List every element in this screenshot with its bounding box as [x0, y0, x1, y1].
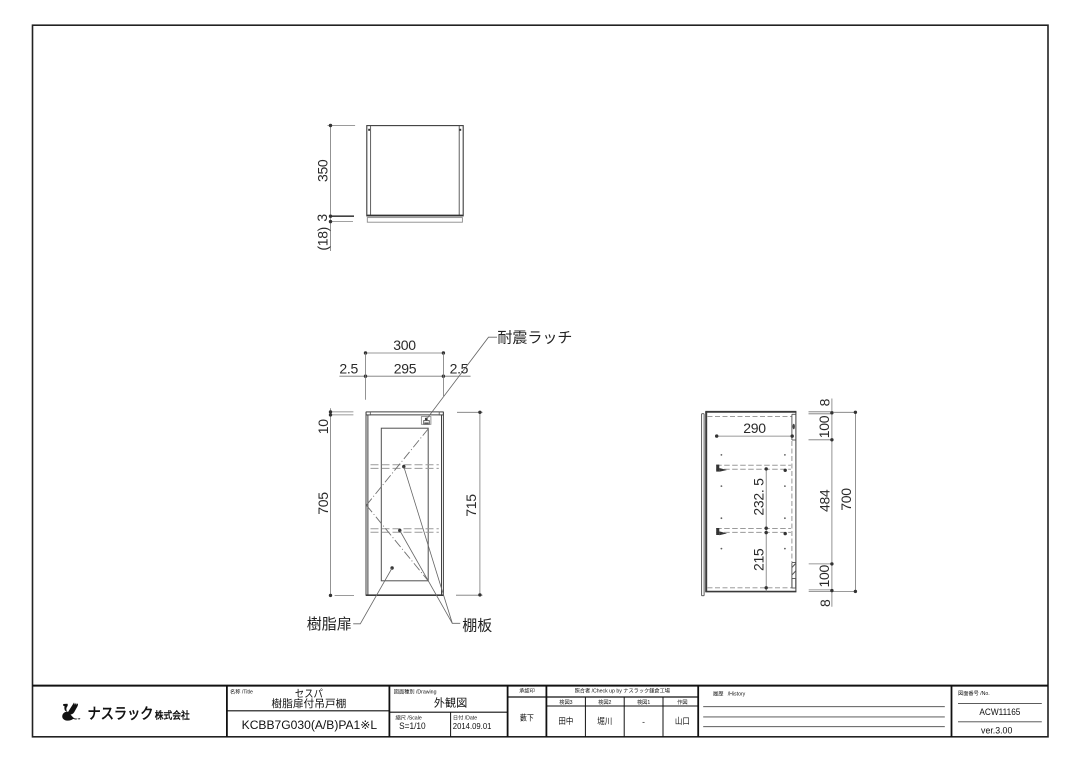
svg-text:S=1/10: S=1/10: [399, 721, 426, 731]
svg-text:図面種別 /Drawing: 図面種別 /Drawing: [394, 688, 437, 696]
svg-text:藪下: 藪下: [520, 712, 534, 722]
svg-text:8: 8: [817, 398, 833, 406]
svg-text:ACW11165: ACW11165: [979, 707, 1020, 718]
svg-text:100: 100: [816, 415, 832, 438]
svg-text:堀川: 堀川: [597, 716, 612, 726]
svg-text:2.5: 2.5: [450, 360, 469, 376]
svg-text:700: 700: [838, 488, 854, 511]
svg-text:KCBB7G030(A/B)PA1※L: KCBB7G030(A/B)PA1※L: [242, 720, 378, 732]
svg-text:295: 295: [394, 360, 417, 376]
svg-text:名称 /Title: 名称 /Title: [230, 688, 253, 696]
svg-text:棚板: 棚板: [462, 616, 492, 634]
svg-text:3: 3: [314, 214, 330, 222]
svg-text:樹脂扉: 樹脂扉: [307, 616, 352, 633]
svg-text:承認印: 承認印: [519, 687, 535, 695]
svg-text:検図3: 検図3: [559, 698, 572, 706]
svg-text:ナスラック: ナスラック: [88, 706, 154, 723]
svg-text:履歴 /History: 履歴 /History: [713, 691, 746, 698]
svg-text:(18): (18): [315, 227, 331, 251]
svg-text:705: 705: [315, 492, 331, 515]
svg-text:300: 300: [393, 337, 416, 353]
svg-text:232. 5: 232. 5: [750, 478, 766, 516]
svg-text:290: 290: [743, 420, 766, 436]
svg-text:樹脂扉付吊戸棚: 樹脂扉付吊戸棚: [271, 697, 346, 710]
svg-text:2014.09.01: 2014.09.01: [453, 721, 492, 731]
svg-text:484: 484: [816, 489, 832, 512]
svg-text:耐震ラッチ: 耐震ラッチ: [497, 329, 572, 346]
svg-text:照合者 /Check up by ナスラック鎌倉工場: 照合者 /Check up by ナスラック鎌倉工場: [575, 687, 670, 695]
svg-text:外観図: 外観図: [434, 695, 468, 709]
svg-text:図面番号 /No.: 図面番号 /No.: [958, 690, 990, 697]
svg-text:215: 215: [750, 548, 766, 571]
svg-text:作図: 作図: [677, 698, 687, 706]
svg-text:10: 10: [315, 419, 331, 434]
svg-text:715: 715: [463, 494, 479, 517]
svg-text:株式会社: 株式会社: [155, 709, 190, 722]
svg-text:検図1: 検図1: [637, 698, 650, 706]
svg-text:2.5: 2.5: [339, 360, 358, 376]
svg-text:山口: 山口: [675, 716, 690, 726]
svg-text:ver.3.00: ver.3.00: [981, 726, 1012, 737]
svg-text:100: 100: [816, 564, 832, 587]
svg-text:-: -: [642, 716, 645, 726]
svg-text:検図2: 検図2: [598, 698, 611, 706]
svg-text:350: 350: [315, 159, 331, 182]
svg-text:田中: 田中: [558, 716, 573, 726]
svg-text:8: 8: [817, 599, 833, 607]
